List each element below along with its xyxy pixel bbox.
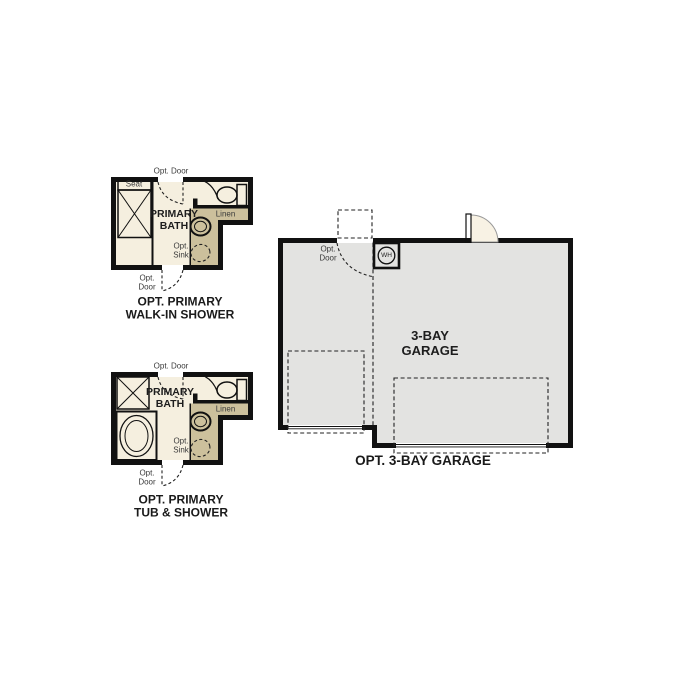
optional-door-bottom-dashed	[162, 270, 183, 291]
garage-door-opening-main	[396, 443, 546, 448]
linen-label-2: Linen	[216, 404, 236, 413]
seat-label: Seat	[126, 179, 142, 188]
opt-door-top-label-2: Opt. Door	[154, 361, 189, 370]
opt-door-bottom-label-2: Opt. Door	[138, 469, 155, 488]
plan-walk-in-shower	[111, 177, 253, 291]
caption-tub-shower: OPT. PRIMARY TUB & SHOWER	[134, 493, 228, 518]
opt-door-bottom-label-1: Opt. Door	[138, 274, 155, 293]
opt-sink-label-2: Opt. Sink	[173, 437, 189, 456]
optional-door-bottom-dashed	[162, 465, 183, 486]
linen-label-1: Linen	[216, 209, 236, 218]
opt-sink-label-1: Opt. Sink	[173, 242, 189, 261]
room-label-primary-bath-2: PRIMARY BATH	[146, 387, 194, 411]
garage-door-opening-left	[288, 425, 362, 430]
floorplan-drawing	[0, 0, 687, 687]
caption-garage: OPT. 3-BAY GARAGE	[355, 453, 491, 469]
floorplan-sheet: Opt. Door Seat PRIMARY BATH Linen Opt. S…	[0, 0, 687, 687]
entry-door-swing-icon	[466, 214, 498, 242]
garage-opt-door-label: Opt. Door	[319, 245, 336, 264]
room-label-garage: 3-BAY GARAGE	[401, 328, 458, 358]
caption-walk-in-shower: OPT. PRIMARY WALK-IN SHOWER	[126, 295, 235, 320]
optional-door-stoop-dashed	[338, 210, 372, 238]
vanity-counter	[191, 404, 218, 461]
opt-door-top-label-1: Opt. Door	[154, 166, 189, 175]
room-label-primary-bath-1: PRIMARY BATH	[150, 209, 198, 233]
water-heater-label: WH	[381, 252, 392, 260]
